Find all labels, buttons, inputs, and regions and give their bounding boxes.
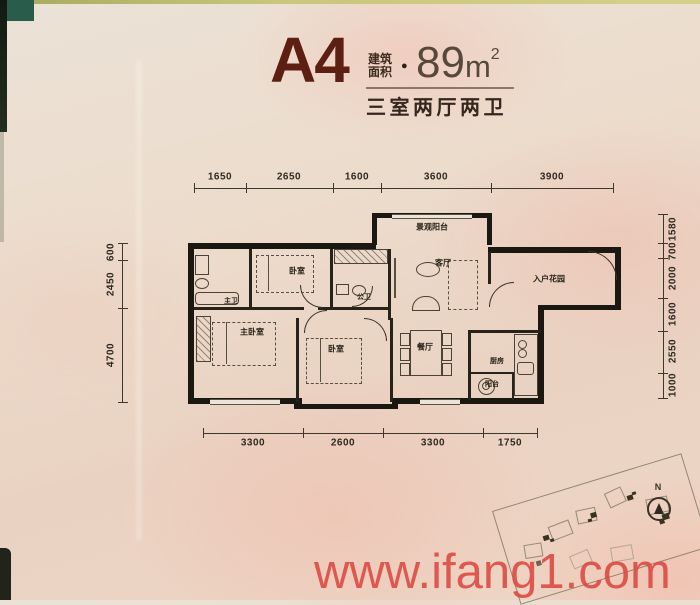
wall-segment (390, 318, 393, 402)
bullet-dot: ● (401, 60, 408, 72)
room-label-entry-garden: 入户花园 (533, 274, 565, 285)
dim-label: 1580 (668, 217, 679, 241)
site-building-shape (543, 535, 550, 542)
dimension-line (663, 214, 664, 398)
furniture (320, 338, 321, 382)
dimension-line (122, 243, 123, 402)
dimension-tick (658, 258, 668, 259)
room-label-bedroom-mid: 卧室 (328, 344, 344, 355)
room-label-public-bath: 公卫 (357, 292, 371, 302)
wall-segment (487, 213, 492, 245)
window (420, 399, 460, 405)
compass-icon (647, 497, 671, 521)
dimension-tick (483, 428, 484, 438)
door-arc (364, 318, 387, 341)
title-divider (366, 87, 514, 89)
dim-label: 600 (106, 243, 117, 261)
dimension-line (194, 188, 614, 189)
room-label-view-balcony: 景观阳台 (416, 222, 448, 233)
wall-segment (468, 330, 541, 333)
photo-edge-left-fade (0, 132, 4, 242)
dimension-tick (537, 428, 538, 438)
room-label-master-bath: 主卫 (224, 296, 238, 306)
dimension-tick (118, 308, 128, 309)
area-unit-sup: 2 (491, 46, 500, 63)
wall-segment (488, 252, 491, 284)
dimension-tick (658, 214, 668, 215)
dim-label: 2550 (668, 339, 679, 363)
dim-label: 3300 (241, 438, 265, 449)
dimension-tick (491, 183, 492, 193)
room-label-dining: 餐厅 (417, 342, 433, 353)
dimension-tick (381, 183, 382, 193)
furniture (412, 296, 440, 311)
furniture (256, 255, 314, 293)
dimension-tick (658, 243, 668, 244)
furniture (442, 333, 452, 346)
room-label-bedroom-top: 卧室 (289, 266, 305, 277)
area-label: 建筑 面积 (368, 53, 392, 79)
dim-label: 2650 (277, 172, 301, 183)
door-arc (304, 310, 327, 333)
dimension-tick (303, 428, 304, 438)
wall-segment (538, 305, 544, 404)
room-label-master-bedroom: 主卧室 (240, 327, 264, 338)
furniture (400, 348, 410, 361)
dim-label: 1000 (668, 373, 679, 397)
dimension-tick (118, 260, 128, 261)
wall-segment (488, 247, 621, 253)
area-label-line2: 面积 (368, 66, 392, 79)
wall-segment (249, 249, 252, 307)
plan-code: A4 (270, 28, 348, 92)
wall-segment (194, 307, 304, 310)
dim-label: 1600 (668, 302, 679, 326)
window (392, 214, 472, 219)
dim-label: 3600 (424, 172, 448, 183)
furniture (196, 316, 211, 362)
dimension-tick (203, 428, 204, 438)
paper-crease (137, 60, 141, 540)
dimension-tick (333, 183, 334, 193)
photo-edge-left-strip (0, 0, 7, 132)
area-value: 89m2 (416, 38, 500, 88)
furniture (442, 348, 452, 361)
furniture (195, 278, 209, 289)
furniture (518, 340, 527, 349)
furniture (410, 330, 442, 376)
dimension-tick (658, 373, 668, 374)
door-arc (489, 282, 514, 307)
furniture (334, 249, 388, 264)
site-building-shape (548, 519, 574, 541)
furniture (336, 284, 349, 295)
dim-label: 3900 (540, 172, 564, 183)
furniture (400, 363, 410, 376)
photo-edge-bottomleft-mark (0, 548, 11, 600)
dimension-tick (658, 331, 668, 332)
furniture (226, 322, 227, 364)
furniture (394, 258, 396, 298)
dim-label: 2600 (331, 438, 355, 449)
wall-segment (543, 305, 618, 310)
dimension-tick (246, 183, 247, 193)
dim-label: 2000 (668, 266, 679, 290)
wall-segment (470, 372, 514, 374)
area-unit: m (465, 49, 491, 84)
wall-segment (330, 249, 333, 307)
layout-subtitle: 三室两厅两卫 (366, 91, 507, 120)
furniture (442, 363, 452, 376)
room-label-living: 客厅 (435, 258, 451, 269)
wall-segment (468, 330, 471, 400)
wall-segment (318, 307, 390, 310)
site-building-shape (604, 486, 627, 508)
door-arc (588, 251, 617, 280)
dimension-tick (118, 243, 128, 244)
window (210, 399, 280, 405)
dimension-line (203, 433, 538, 434)
dimension-tick (383, 428, 384, 438)
photo-edge-top-strip (0, 0, 700, 4)
watermark-text: www.ifang1.com (314, 544, 671, 600)
wall-segment (296, 318, 299, 402)
wall-segment (188, 243, 194, 404)
area-number: 89 (416, 38, 465, 87)
dimension-tick (118, 402, 128, 403)
wall-segment (372, 213, 377, 245)
dim-label: 2450 (106, 272, 117, 296)
dimension-tick (194, 183, 195, 193)
furniture (448, 260, 478, 310)
dimension-tick (658, 398, 668, 399)
dimension-tick (658, 298, 668, 299)
wall-segment (294, 404, 398, 409)
dimension-tick (613, 183, 614, 193)
furniture (517, 362, 534, 375)
dim-label: 700 (668, 242, 679, 260)
furniture (195, 255, 209, 275)
furniture (400, 333, 410, 346)
dim-label: 1650 (208, 172, 232, 183)
dim-label: 1750 (498, 438, 522, 449)
room-label-balcony: 阳台 (485, 379, 499, 389)
site-building-shape (626, 494, 633, 501)
dim-label: 1600 (345, 172, 369, 183)
dim-label: 3300 (421, 438, 445, 449)
compass-north-label: N (655, 482, 662, 492)
furniture (518, 349, 527, 358)
floorplan-photo: { "header": { "plan_code": "A4", "area_l… (0, 0, 700, 600)
room-label-kitchen: 厨房 (490, 356, 504, 366)
furniture (268, 255, 269, 291)
dim-label: 4700 (106, 343, 117, 367)
compass-needle (654, 503, 664, 514)
